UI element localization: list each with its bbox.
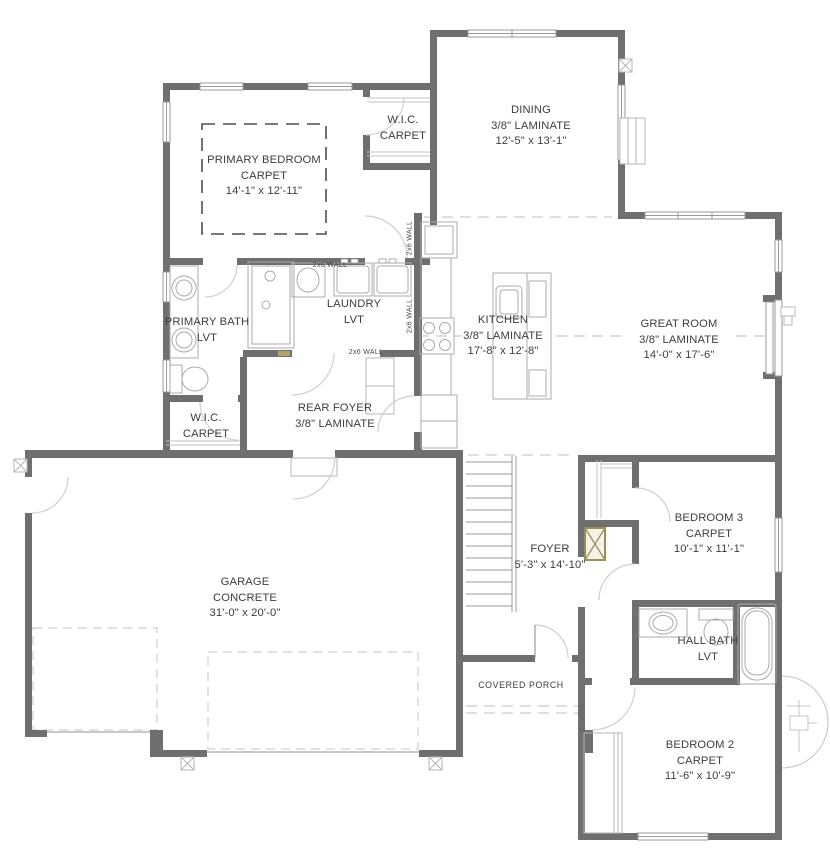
- wall-note-2x6-laundry: 2x6 WALL: [349, 349, 383, 356]
- room-label-bedroom-3: BEDROOM 3 CARPET 10'-1" x 11'-1": [674, 511, 744, 558]
- ac-unit-icon: [782, 676, 828, 768]
- utility-meter-icon: [781, 307, 795, 325]
- wall-blocking: [278, 351, 290, 356]
- wall-note-2x6-top: 2x6 WALL: [313, 262, 347, 269]
- room-label-kitchen: KITCHEN 3/8" LAMINATE 17'-8" x 12'-8": [463, 313, 543, 360]
- window-mullions: [167, 30, 779, 837]
- room-label-primary-bedroom: PRIMARY BEDROOM CARPET 14'-1" x 12'-11": [207, 153, 321, 200]
- room-label-wic-primary: W.I.C. CARPET: [380, 113, 426, 144]
- wall-note-2x6-kitchen-lower: 2x6 WALL: [407, 299, 414, 333]
- room-label-hall-bath: HALL BATH LVT: [677, 634, 738, 665]
- wall-note-2x6-kitchen-upper: 2x6 WALL: [407, 221, 414, 255]
- hall-bath-sink-icon: [639, 609, 687, 637]
- garage-door-overhead-outline: [33, 628, 418, 749]
- room-label-garage: GARAGE CONCRETE 31'-0" x 20'-0": [209, 575, 280, 622]
- room-label-dining: DINING 3/8" LAMINATE 12'-5" x 13'-1": [491, 103, 571, 150]
- garage-step: [291, 458, 337, 476]
- room-label-primary-bath: PRIMARY BATH LVT: [165, 315, 249, 346]
- room-label-wic-2: W.I.C. CARPET: [183, 411, 229, 442]
- room-label-laundry: LAUNDRY LVT: [327, 297, 381, 328]
- floor-plan: PRIMARY BEDROOM CARPET 14'-1" x 12'-11" …: [0, 0, 830, 850]
- room-label-bedroom-2: BEDROOM 2 CARPET 11'-6" x 10'-9": [665, 738, 735, 785]
- room-label-rear-foyer: REAR FOYER 3/8" LAMINATE: [295, 401, 375, 432]
- bathtub-icon: [738, 604, 776, 684]
- room-label-covered-porch: COVERED PORCH: [478, 678, 564, 694]
- shower-icon: [248, 262, 294, 348]
- room-label-foyer: FOYER 5'-3" x 14'-10": [514, 542, 585, 573]
- dining-buffet-icon: [620, 118, 645, 164]
- toilet-icon: [170, 365, 208, 393]
- room-label-great-room: GREAT ROOM 3/8" LAMINATE 14'-0" x 17'-6": [639, 317, 719, 364]
- kitchen-counters-icon: [421, 222, 457, 448]
- windows: [163, 30, 782, 840]
- stairs-icon: [466, 456, 516, 612]
- dryer-icon: [374, 263, 411, 296]
- linen-closet-icon: [585, 528, 605, 560]
